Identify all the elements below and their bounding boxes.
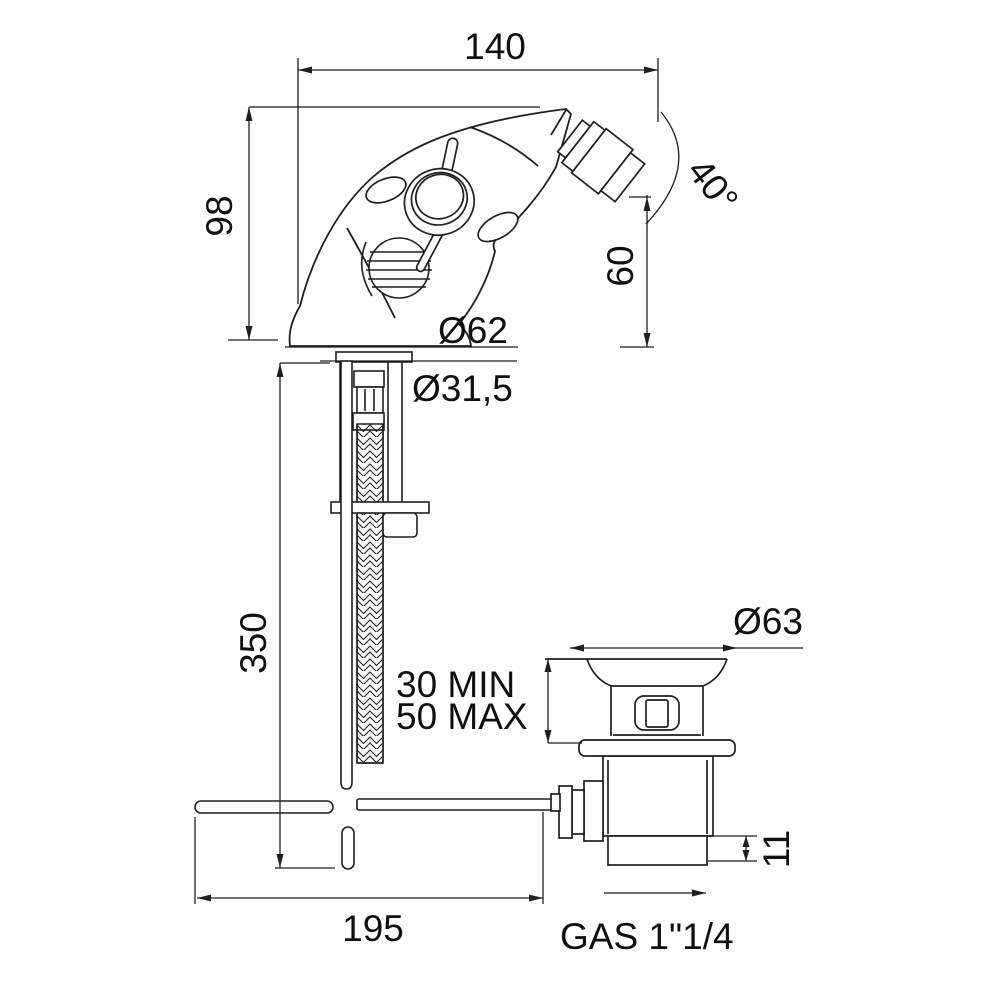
dim-140-label: 140 xyxy=(464,26,526,67)
dim-195-label: 195 xyxy=(342,908,404,949)
waste-rod-clevis xyxy=(551,794,560,811)
waste-lower-body xyxy=(603,756,713,836)
dim-50max-label: 50 MAX xyxy=(396,696,528,737)
waste-plug-hole-outer xyxy=(635,696,679,730)
drawing-sheet: 140 98 40° 60 Ø62 Ø31,5 350 30 MIN 50 MA… xyxy=(0,0,1000,1000)
linkage-rod-right xyxy=(357,799,561,810)
waste-connector-b xyxy=(572,790,584,834)
dim-gas-label: GAS 1"1/4 xyxy=(560,916,734,957)
bracket-nut xyxy=(383,513,417,537)
waste-trumpet-right xyxy=(703,659,727,686)
waste-tailpiece xyxy=(608,836,707,865)
waste-flange-plate xyxy=(579,740,735,756)
popup-lift-rod xyxy=(341,361,352,789)
dim-40-label: 40° xyxy=(679,151,746,220)
waste-trumpet-left xyxy=(587,659,611,686)
dim-60-label: 60 xyxy=(600,245,641,286)
dim-o62-label: Ø62 xyxy=(438,310,508,351)
dim-40-arc xyxy=(646,112,679,224)
dim-11-label: 11 xyxy=(756,830,797,868)
linkage-rod-left xyxy=(195,801,333,813)
waste-connector-a xyxy=(559,786,572,838)
hose-braid xyxy=(357,424,383,763)
dim-o315-label: Ø31,5 xyxy=(412,368,513,409)
shank-nut xyxy=(354,371,384,387)
linkage-pivot-stub xyxy=(342,827,354,869)
technical-drawing-canvas: 140 98 40° 60 Ø62 Ø31,5 350 30 MIN 50 MA… xyxy=(0,0,1000,1000)
flexible-hose xyxy=(357,424,383,763)
waste-connector-c xyxy=(584,781,603,841)
popup-waste xyxy=(545,659,735,865)
shank-spline xyxy=(357,387,383,413)
popup-linkage xyxy=(195,799,561,869)
dim-98-label: 98 xyxy=(199,195,240,236)
dim-o63-label: Ø63 xyxy=(733,601,803,642)
dim-350-label: 350 xyxy=(233,612,274,674)
